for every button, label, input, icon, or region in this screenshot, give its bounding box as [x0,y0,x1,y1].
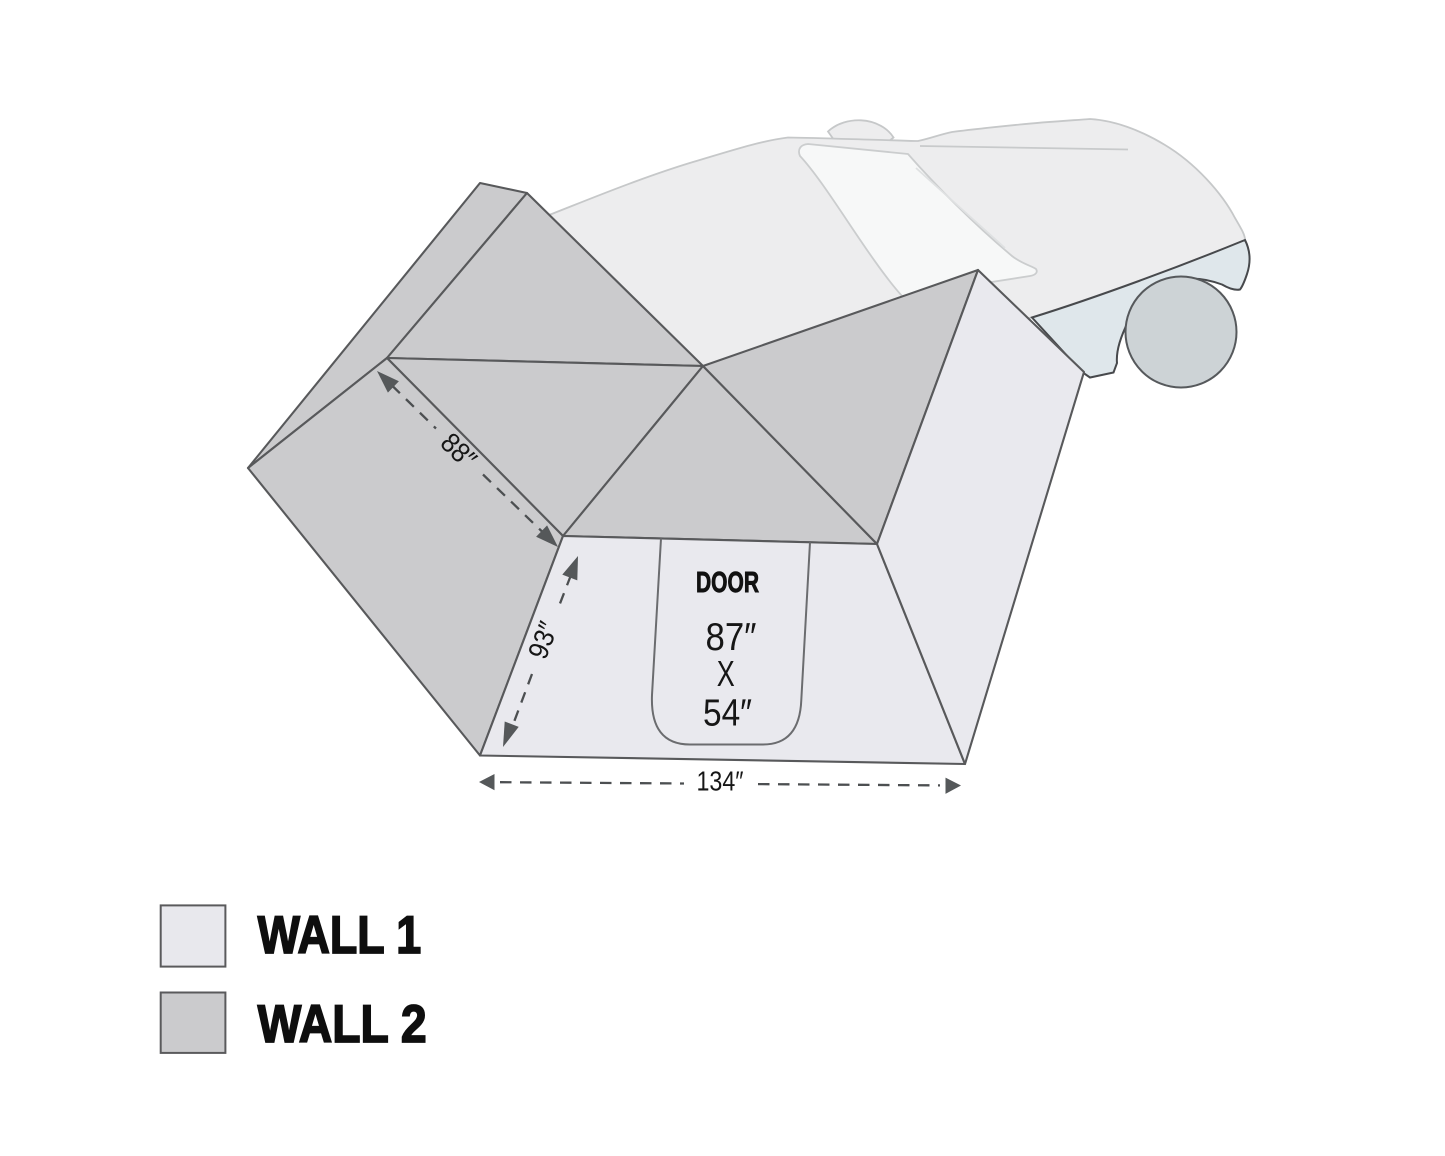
svg-text:54″: 54″ [703,693,752,735]
svg-text:X: X [717,653,735,694]
svg-text:DOOR: DOOR [696,567,759,599]
svg-text:134″: 134″ [697,766,744,797]
svg-text:WALL 2: WALL 2 [258,995,427,1054]
svg-text:WALL 1: WALL 1 [258,906,422,965]
